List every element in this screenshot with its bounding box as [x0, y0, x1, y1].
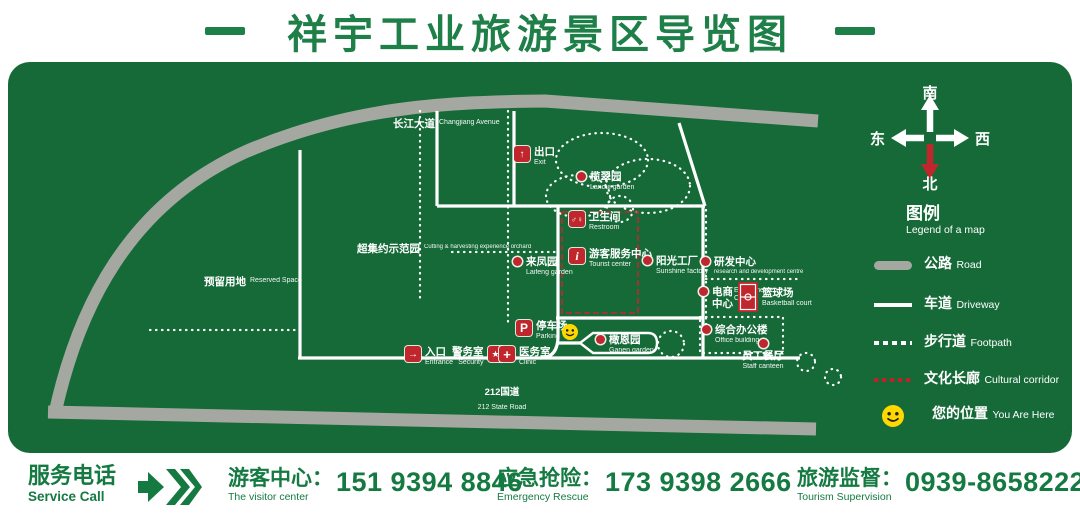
map-dot-icon [596, 335, 605, 344]
map-dot-icon [701, 257, 710, 266]
compass-south-label: 南 [868, 82, 992, 103]
poi-parking: P 停车场 Parking [516, 320, 568, 341]
footer: 服务电话 Service Call 游客中心： The visitor cent… [0, 453, 1080, 520]
poi-exit: ↑ 出口 Exit [514, 146, 555, 167]
compass-north-label: 北 [868, 173, 992, 194]
map-dot-icon [513, 257, 522, 266]
legend-item-footpath: 步行道 Footpath [874, 333, 1012, 351]
poi-lancui-garden: 榄翠园 Lancui garden [577, 171, 634, 192]
poi-security: 警务室 Security ★ [452, 346, 504, 367]
poi-tourist-center: i 游客服务中心 Tourist center [569, 248, 652, 269]
clinic-cross-icon: + [499, 346, 515, 362]
compass-east-label: 东 [870, 128, 885, 149]
compass: 南 北 东 西 [868, 82, 992, 194]
map-dot-icon [759, 339, 768, 348]
tourism-supervision-phone: 0939-8658222 [905, 467, 1080, 498]
triple-arrow-icon [138, 465, 202, 509]
legend-item-road: 公路 Road [874, 255, 982, 273]
smiley-icon [562, 324, 578, 340]
service-call-label: 服务电话 Service Call [28, 463, 116, 504]
scenic-area-guide-map: 祥宇工业旅游景区导览图 [0, 0, 1080, 520]
label-changjiang-avenue: 长江大道 Changjiang Avenue [393, 118, 500, 130]
smiley-icon [882, 405, 904, 427]
restroom-icon: ♂♀ [569, 211, 585, 227]
map-dot-icon [702, 325, 711, 334]
label-212-state-road: 212国道 212 State Road [468, 388, 536, 412]
map-dot-icon [577, 172, 586, 181]
poi-rd-center: 研发中心 research and development centre [701, 256, 803, 276]
legend-item-cultural-corridor: 文化长廊 Cultural corridor [874, 370, 1059, 388]
parking-icon: P [516, 320, 532, 336]
emergency-rescue-label: 应急抢险： Emergency Rescue [497, 467, 602, 504]
you-are-here-marker [562, 324, 578, 340]
road-swatch-icon [874, 261, 912, 270]
exit-icon: ↑ [514, 146, 530, 162]
poi-clinic: + 医务室 Clinic [499, 346, 551, 367]
map-dot-icon [699, 287, 708, 296]
poi-basketball-court: 篮球场 Basketball court [738, 282, 812, 312]
legend-title: 图例 Legend of a map [906, 204, 985, 236]
poi-sunshine-factory: 阳光工厂 Sunshine factory [643, 255, 708, 276]
map-dot-icon [643, 256, 652, 265]
basketball-court-icon [738, 282, 758, 312]
legend-item-you-are-here: 您的位置 You Are Here [874, 405, 1055, 427]
label-demo-orchard: 超集约示范园 Cutting & harvesting experience o… [357, 243, 531, 255]
state-road-212 [48, 412, 816, 429]
entrance-icon: → [405, 346, 421, 362]
driveway-swatch-icon [874, 303, 912, 307]
visitor-center-phone: 151 9394 8846 [336, 467, 523, 498]
poi-entrance: → 入口 Entrance [405, 346, 453, 367]
poi-laifeng-garden: 来凤园 Laifeng garden [513, 256, 573, 277]
footpath-swatch-icon [874, 341, 912, 345]
legend: 公路 Road 车道 Driveway 步行道 Footpath 文化长廊 Cu… [874, 247, 1074, 442]
poi-ganen-garden: 橄恩园 Ganen garden [596, 334, 654, 355]
visitor-center-label: 游客中心： The visitor center [228, 467, 333, 504]
cultural-corridor-swatch-icon [874, 378, 912, 382]
poi-staff-canteen: 员工餐厅 Staff canteen [740, 338, 786, 371]
tourism-supervision-label: 旅游监督： Tourism Supervision [797, 467, 902, 504]
emergency-rescue-phone: 173 9398 2666 [605, 467, 792, 498]
legend-item-driveway: 车道 Driveway [874, 295, 1000, 313]
poi-restroom: ♂♀ 卫生间 Restroom [569, 211, 621, 232]
compass-west-label: 西 [975, 128, 990, 149]
label-reserved-space: 预留用地 Reserved Space [204, 276, 302, 288]
